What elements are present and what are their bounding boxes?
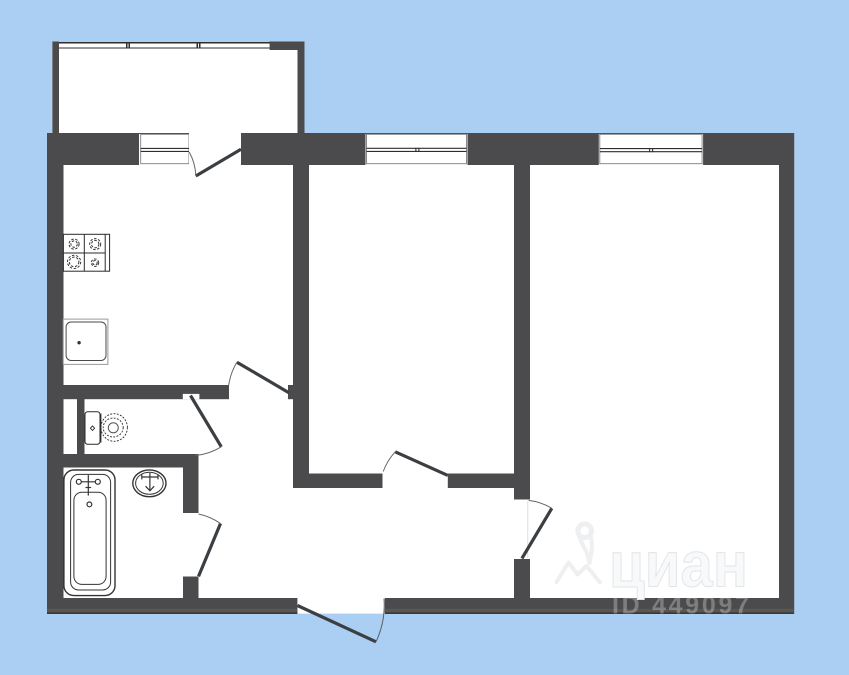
- svg-text:ID 449097: ID 449097: [612, 592, 749, 620]
- svg-text:циан: циан: [609, 529, 748, 601]
